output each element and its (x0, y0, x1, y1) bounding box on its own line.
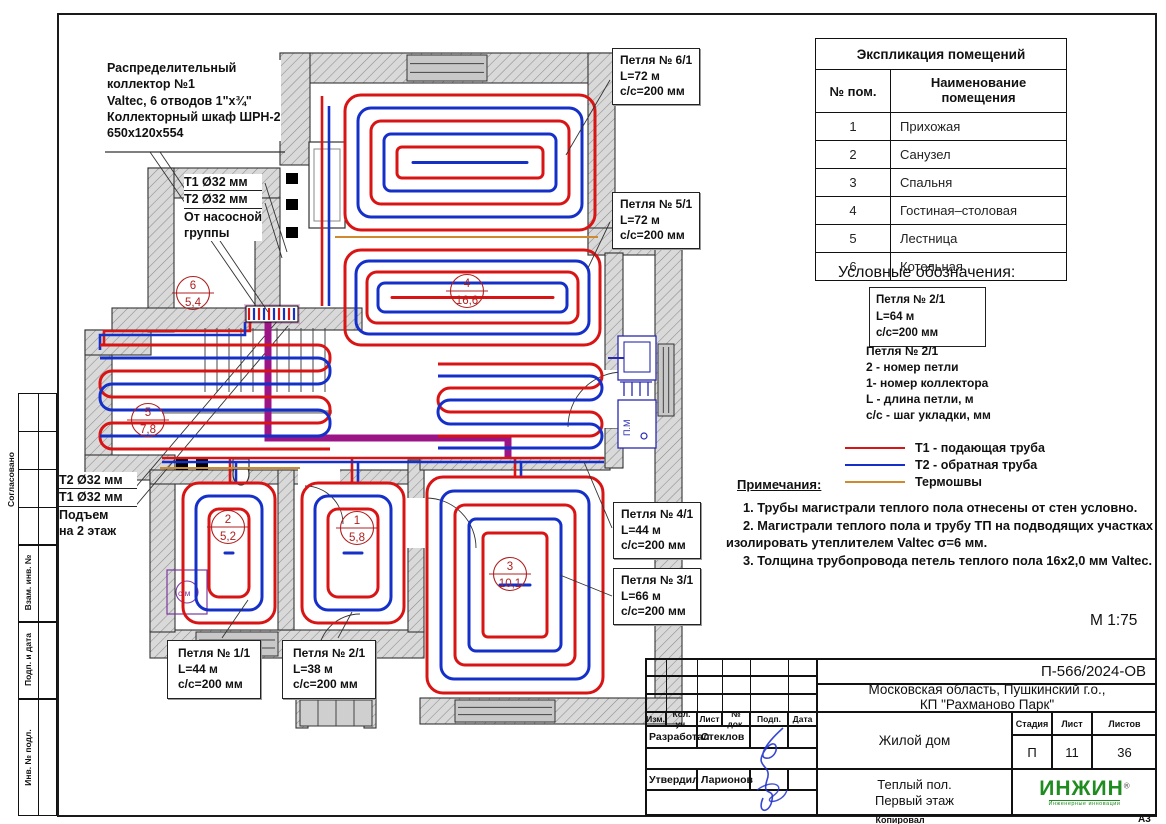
title-block: Изм. Кол. уч. Лист № док. Подп. Дата Раз… (645, 658, 1157, 816)
t1t2-note: Т1 Ø32 мм Т2 Ø32 мм От насосной группы (184, 174, 262, 241)
svg-text:7,8: 7,8 (140, 424, 156, 436)
col-koluch: Кол. уч. (666, 712, 697, 726)
thermal-line-sample (845, 481, 905, 483)
table-row: 1Прихожая (816, 113, 1067, 141)
format-label: А3 (1138, 814, 1151, 824)
drawing-sheet: П.Мс/м 15,825,2310,1416,657,865,4 Распре… (0, 0, 1166, 824)
strip-grid (18, 393, 57, 545)
note-3: 3. Толщина трубопровода петель теплого п… (726, 553, 1160, 570)
room-marker: 65,4 (172, 277, 214, 310)
rooms-table-col1: № пом. (816, 70, 891, 113)
t1-label: Т1 Ø32 мм (184, 174, 262, 191)
col-list: Лист (697, 712, 722, 726)
company-logo: ИНЖИН® Инженерные инновации (1012, 769, 1157, 816)
svg-text:2: 2 (225, 514, 231, 526)
agreed-label: Согласовано (2, 427, 18, 532)
vzam-label: Взам. инв. № (19, 545, 37, 620)
notes-block: 1. Трубы магистрали теплого пола отнесен… (726, 500, 1160, 571)
table-row: 4Гостиная–столовая (816, 197, 1067, 225)
loop-label-5-1: Петля № 5/1L=72 мс/с=200 мм (612, 192, 700, 249)
svg-text:10,1: 10,1 (499, 578, 521, 590)
svg-text:16,6: 16,6 (456, 295, 478, 307)
svg-text:3: 3 (507, 561, 513, 573)
svg-text:5: 5 (145, 407, 151, 419)
loop-label-2-1: Петля № 2/1L=38 мс/с=200 мм (282, 640, 376, 699)
room-marker: 25,2 (207, 511, 249, 544)
svg-text:П.М: П.М (622, 420, 632, 436)
loop-label-6-1: Петля № 6/1L=72 мс/с=200 мм (612, 48, 700, 105)
legend-sample-box: Петля № 2/1 L=64 м с/с=200 мм (869, 287, 986, 347)
riser-text: Подъем на 2 этаж (59, 508, 116, 538)
svg-text:6: 6 (190, 280, 196, 292)
t2-label: Т2 Ø32 мм (184, 191, 262, 208)
signature (743, 720, 795, 816)
developed-label: Разработал (645, 726, 697, 748)
project-location: Московская область, Пушкинский г.о.,КП "… (817, 684, 1157, 712)
supply-line-sample (845, 447, 905, 449)
stage-label: Стадия (1012, 712, 1052, 735)
svg-text:4: 4 (464, 278, 471, 290)
rooms-table-col2: Наименование помещения (891, 70, 1067, 113)
riser-note: Т2 Ø32 мм Т1 Ø32 мм Подъем на 2 этаж (59, 472, 137, 539)
svg-text:5,2: 5,2 (220, 531, 236, 543)
svg-text:1: 1 (354, 515, 360, 527)
from-pump-label: От насосной группы (184, 210, 262, 240)
riser-t2-label: Т2 Ø32 мм (59, 472, 137, 489)
project-code: П-566/2024-ОВ (817, 658, 1157, 684)
sheet-label: Лист (1052, 712, 1092, 735)
stage-value: П (1012, 735, 1052, 769)
copied-label: Копировал (855, 815, 945, 824)
object-name: Жилой дом (817, 712, 1012, 769)
table-row: 3Спальня (816, 169, 1067, 197)
room-marker: 416,6 (446, 275, 488, 308)
collector-note: Распределительный коллектор №1 Valtec, 6… (107, 60, 281, 141)
note-2: 2. Магистрали теплого пола и трубу ТП на… (726, 518, 1160, 552)
loop-label-4-1: Петля № 4/1L=44 мс/с=200 мм (613, 502, 701, 559)
room-marker: 57,8 (127, 404, 169, 437)
podp-label: Подп. и дата (19, 622, 37, 697)
scale-label: М 1:75 (1090, 612, 1137, 630)
drawing-title: Теплый пол. Первый этаж (817, 769, 1012, 816)
main-pipes (100, 96, 604, 484)
svg-text:5,4: 5,4 (185, 297, 202, 309)
table-row: 5Лестница (816, 225, 1067, 253)
loop-label-1-1: Петля № 1/1L=44 мс/с=200 мм (167, 640, 261, 699)
rooms-table: Экспликация помещений № пом. Наименовани… (815, 38, 1067, 281)
legend-description: Петля № 2/1 2 - номер петли 1- номер кол… (866, 344, 991, 424)
distribution-collector (244, 304, 300, 324)
return-line-sample (845, 464, 905, 466)
note-1: 1. Трубы магистрали теплого пола отнесен… (726, 500, 1160, 517)
legend-thermal-row: Термошвы (845, 475, 982, 489)
legend-title: Условные обозначения: (838, 264, 1015, 282)
notes-title: Примечания: (737, 477, 821, 492)
legend-return-row: Т2 - обратная труба (845, 458, 1037, 472)
col-izm: Изм. (645, 712, 666, 726)
sheets-label: Листов (1092, 712, 1157, 735)
loop-label-3-1: Петля № 3/1L=66 мс/с=200 мм (613, 568, 701, 625)
sheet-number: 11 (1052, 735, 1092, 769)
table-row: 2Санузел (816, 141, 1067, 169)
approved-label: Утвердил (645, 769, 697, 790)
inv-label: Инв. № подл. (19, 701, 37, 814)
legend-supply-row: Т1 - подающая труба (845, 441, 1045, 455)
sheets-total: 36 (1092, 735, 1157, 769)
rooms-table-title: Экспликация помещений (816, 39, 1067, 70)
riser-t1-label: Т1 Ø32 мм (59, 489, 137, 506)
svg-text:5,8: 5,8 (349, 532, 365, 544)
